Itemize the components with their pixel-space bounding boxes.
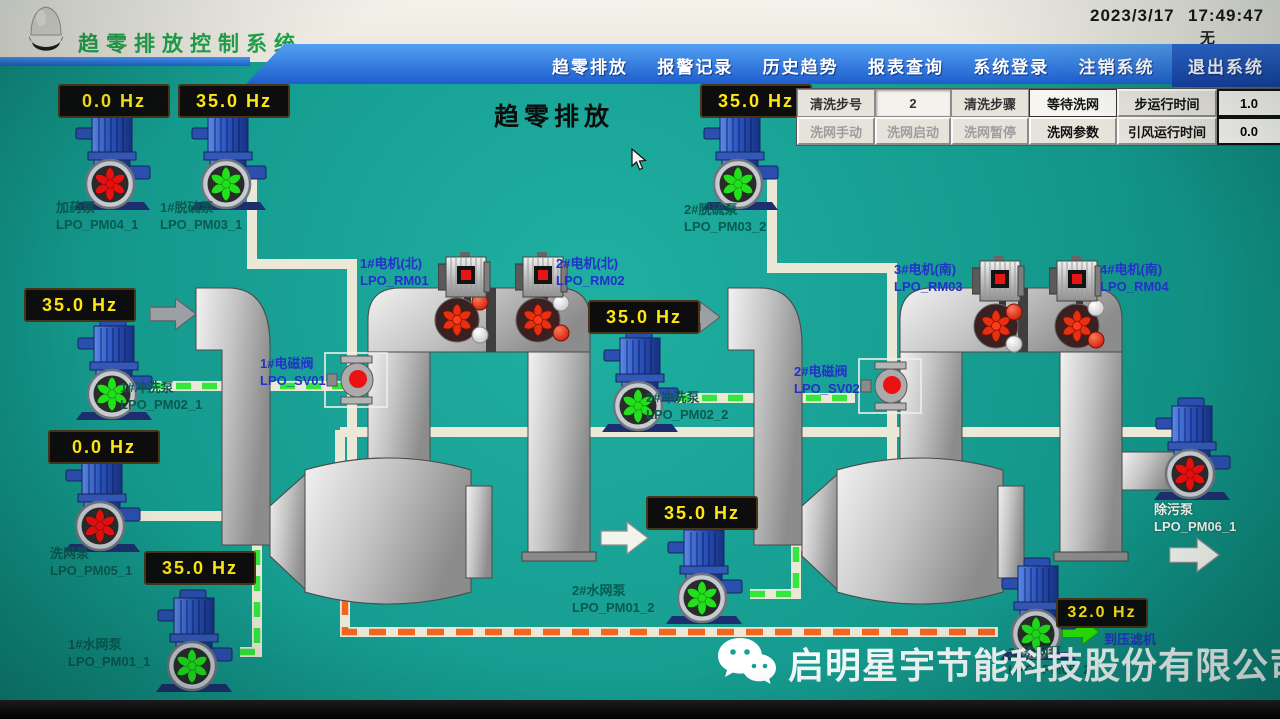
hz-display-pm01-2: 35.0 Hz — [646, 496, 758, 530]
pump-icon — [186, 106, 278, 210]
to-filter-press-label: 到压滤机 — [1104, 629, 1156, 648]
pump-label-pm06-1: 除污泵LPO_PM06_1 — [1154, 502, 1236, 536]
fan-time-label: 引风运行时间 — [1117, 117, 1217, 145]
pump-LPO_PM04_1[interactable] — [70, 106, 162, 210]
menu-item-logout[interactable]: 注销系统 — [1067, 45, 1167, 86]
pump-label-pm02-2: 2#冲洗泵LPO_PM02_2 — [646, 390, 728, 424]
hz-display-pm03-1: 35.0 Hz — [178, 84, 290, 118]
menu-item-trends[interactable]: 历史趋势 — [751, 45, 851, 86]
hz-display-pm05-1: 0.0 Hz — [48, 430, 160, 464]
time-label: 17:49:47 — [1188, 6, 1264, 26]
pump-icon — [1150, 396, 1242, 500]
menu-item-reports[interactable]: 报表查询 — [856, 45, 956, 86]
valve-LPO_SV02[interactable] — [858, 358, 924, 416]
pump-label-pm02-1: 1#冲洗泵LPO_PM02_1 — [120, 380, 202, 414]
pump-icon — [152, 588, 244, 692]
menu-item-alarms[interactable]: 报警记录 — [645, 45, 745, 86]
valve-LPO_SV01[interactable] — [324, 352, 390, 410]
valve-icon — [324, 352, 390, 410]
scada-screen: 趋零排放控制系统 2023/3/17 17:49:47 无 趋零排放 报警记录 … — [0, 0, 1280, 719]
step-time-label: 步运行时间 — [1117, 89, 1217, 117]
step-no-value[interactable]: 2 — [875, 89, 951, 117]
pump-label-pm01-1: 1#水网泵LPO_PM01_1 — [68, 637, 150, 671]
status-ball-red — [1088, 332, 1104, 348]
pump-icon — [698, 106, 790, 210]
pump-label-pm03-1: 1#脱硫泵LPO_PM03_1 — [160, 200, 242, 234]
pump-label-pm03-2: 2#脱硫泵LPO_PM03_2 — [684, 202, 766, 236]
pump-icon — [662, 520, 754, 624]
pump-label-pm01-2: 2#水网泵LPO_PM01_2 — [572, 583, 654, 617]
outlet-arrow-icon — [1170, 538, 1220, 572]
motor-label-rm04: 4#电机(南)LPO_RM04 — [1100, 262, 1169, 296]
pump-LPO_PM06_1[interactable] — [1150, 396, 1242, 500]
step-time-value: 1.0 — [1217, 89, 1279, 117]
hz-display-pm05-2: 32.0 Hz — [1056, 598, 1148, 628]
status-ball-white — [1006, 336, 1022, 352]
wash-start-button[interactable]: 洗网启动 — [875, 117, 951, 145]
pump-LPO_PM03_1[interactable] — [186, 106, 278, 210]
wash-control-panel: 清洗步号 2 清洗步骤 等待洗网 步运行时间 1.0 分 洗网手动 洗网启动 洗… — [796, 88, 1280, 146]
pump-LPO_PM03_2[interactable] — [698, 106, 790, 210]
menu-item-exit[interactable]: 退出系统 — [1172, 44, 1280, 87]
lamp-icon — [26, 4, 66, 57]
step-value: 等待洗网 — [1029, 89, 1117, 117]
fan-time-value: 0.0 — [1217, 117, 1279, 145]
wash-manual-button[interactable]: 洗网手动 — [797, 117, 875, 145]
screen-bezel — [0, 700, 1280, 719]
motor-icon — [1049, 256, 1105, 308]
wash-pause-button[interactable]: 洗网暂停 — [951, 117, 1029, 145]
hz-display-pm02-1: 35.0 Hz — [24, 288, 136, 322]
flow-arrow-icon — [601, 522, 648, 554]
motor-label-rm01: 1#电机(北)LPO_RM01 — [360, 256, 429, 290]
pump-label-pm04-1: 加药泵LPO_PM04_1 — [56, 200, 138, 234]
date-label: 2023/3/17 — [1090, 6, 1175, 26]
main-menu: 趋零排放 报警记录 历史趋势 报表查询 系统登录 注销系统 退出系统 — [540, 46, 1280, 84]
system-title: 趋零排放控制系统 — [78, 28, 302, 58]
valve-label-sv02: 2#电磁阀LPO_SV02 — [794, 364, 860, 398]
motor-LPO_RM04[interactable] — [1049, 256, 1105, 308]
pump-label-pm05-1: 洗网泵LPO_PM05_1 — [50, 546, 132, 580]
pump-LPO_PM01_1[interactable] — [152, 588, 244, 692]
motor-icon — [438, 252, 494, 304]
hz-display-pm04-1: 0.0 Hz — [58, 84, 170, 118]
motor-LPO_RM03[interactable] — [972, 256, 1028, 308]
wash-params-button[interactable]: 洗网参数 — [1029, 117, 1117, 145]
blue-strip — [0, 57, 250, 66]
pump-label-pm05-2: 2#洗网泵LPO_PM05_2 — [1008, 645, 1090, 679]
menu-item-login[interactable]: 系统登录 — [961, 45, 1061, 86]
hz-display-pm02-2: 35.0 Hz — [588, 300, 700, 334]
motor-LPO_RM01[interactable] — [438, 252, 494, 304]
motor-label-rm03: 3#电机(南)LPO_RM03 — [894, 262, 963, 296]
motor-label-rm02: 2#电机(北)LPO_RM02 — [556, 256, 625, 290]
motor-icon — [972, 256, 1028, 308]
hz-display-pm01-1: 35.0 Hz — [144, 551, 256, 585]
step-no-label: 清洗步号 — [797, 89, 875, 117]
step-label: 清洗步骤 — [951, 89, 1029, 117]
status-ball-red — [553, 325, 569, 341]
menu-item-overview[interactable]: 趋零排放 — [540, 45, 640, 86]
valve-label-sv01: 1#电磁阀LPO_SV01 — [260, 356, 326, 390]
pump-LPO_PM01_2[interactable] — [662, 520, 754, 624]
screen-title: 趋零排放 — [494, 97, 614, 133]
valve-icon — [858, 358, 924, 416]
status-ball-white — [472, 327, 488, 343]
pump-icon — [70, 106, 162, 210]
